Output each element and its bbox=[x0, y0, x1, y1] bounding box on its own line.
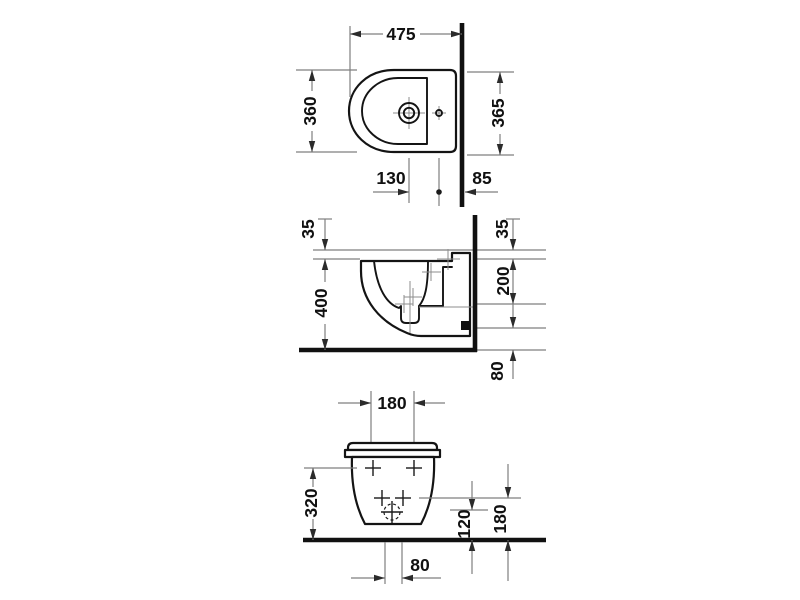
arrowhead bbox=[350, 31, 361, 37]
center-dot bbox=[436, 189, 442, 195]
mount-bracket bbox=[461, 321, 470, 330]
dimension-label: 35 bbox=[492, 219, 512, 239]
arrowhead bbox=[510, 350, 516, 361]
dimension-label: 80 bbox=[410, 555, 430, 575]
arrowhead bbox=[497, 72, 503, 83]
arrowhead bbox=[465, 189, 476, 195]
dimension-label: 365 bbox=[488, 98, 508, 127]
arrowhead bbox=[510, 239, 516, 250]
arrowhead bbox=[309, 70, 315, 81]
dimension-label: 180 bbox=[490, 504, 510, 533]
dimension-label: 360 bbox=[300, 96, 320, 125]
dimension-label: 320 bbox=[301, 488, 321, 517]
dimension-label: 200 bbox=[493, 266, 513, 295]
arrowhead bbox=[497, 144, 503, 155]
dimension-label: 80 bbox=[487, 361, 507, 381]
drawing-canvas: 475 360 365 130 85 bbox=[0, 0, 800, 600]
arrowhead bbox=[374, 575, 385, 581]
side-view: 35 400 35 200 80 bbox=[298, 215, 546, 381]
dimension-label: 400 bbox=[311, 288, 331, 317]
technical-drawing: 475 360 365 130 85 bbox=[0, 0, 800, 600]
arrowhead bbox=[414, 400, 425, 406]
arrowhead bbox=[309, 141, 315, 152]
arrowhead bbox=[322, 259, 328, 270]
top-view: 475 360 365 130 85 bbox=[296, 23, 514, 207]
dimension-label: 130 bbox=[376, 168, 405, 188]
dimension-label: 475 bbox=[386, 24, 415, 44]
body-outline bbox=[352, 457, 434, 524]
arrowhead bbox=[469, 499, 475, 510]
arrowhead bbox=[310, 468, 316, 479]
arrowhead bbox=[402, 575, 413, 581]
arrowhead bbox=[398, 189, 409, 195]
arrowhead bbox=[510, 317, 516, 328]
dimension-label: 85 bbox=[472, 168, 492, 188]
arrowhead bbox=[360, 400, 371, 406]
arrowhead bbox=[322, 239, 328, 250]
dimension-label: 120 bbox=[454, 509, 474, 538]
arrowhead bbox=[505, 487, 511, 498]
dimension-label: 180 bbox=[377, 393, 406, 413]
dimension-label: 35 bbox=[298, 219, 318, 239]
front-view: 180 320 120 bbox=[301, 391, 546, 584]
